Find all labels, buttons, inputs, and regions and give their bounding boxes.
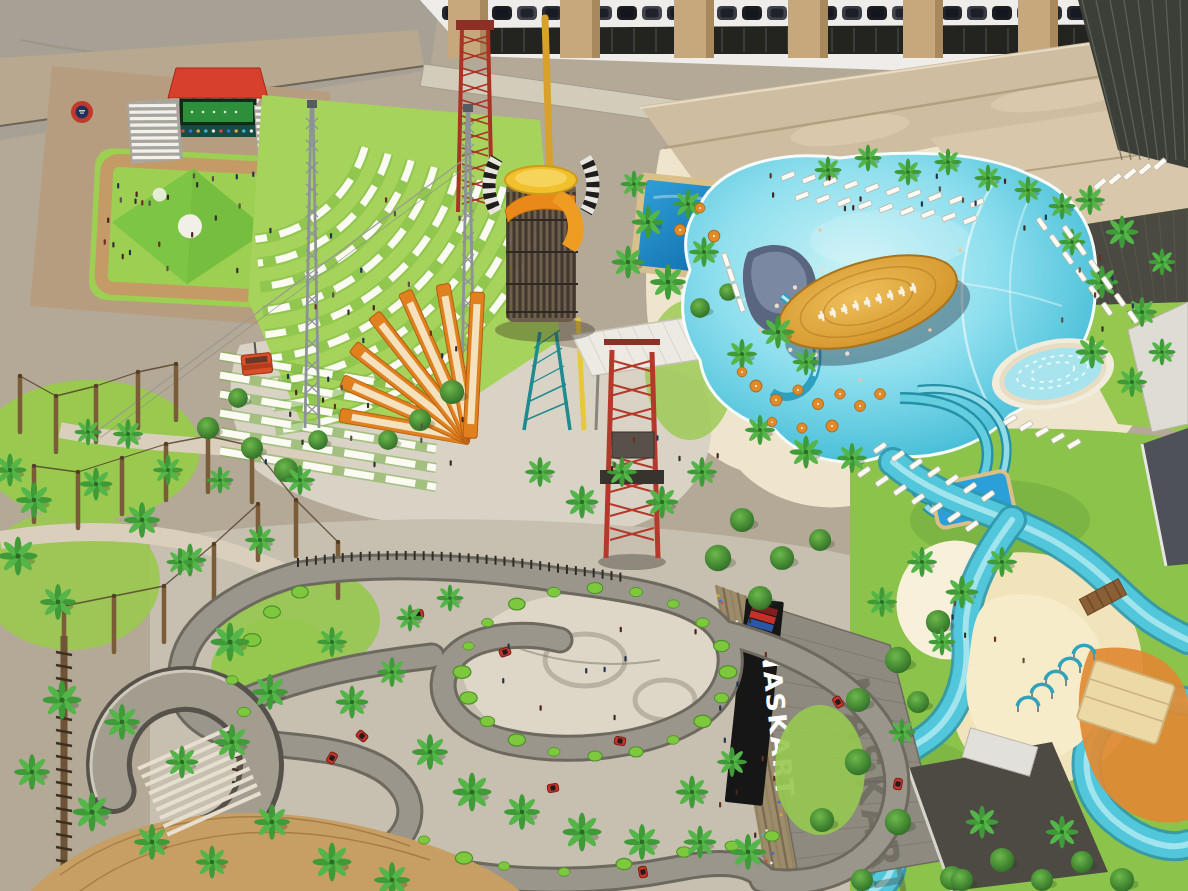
park-rendering: NASKART NASKART [0, 0, 1188, 891]
park-rendering-image: NASKART NASKART [0, 0, 1188, 891]
stage-video-screen [183, 102, 253, 122]
bleachers-left [127, 98, 183, 163]
stage [168, 68, 268, 137]
park-emblem-sign [71, 101, 93, 123]
